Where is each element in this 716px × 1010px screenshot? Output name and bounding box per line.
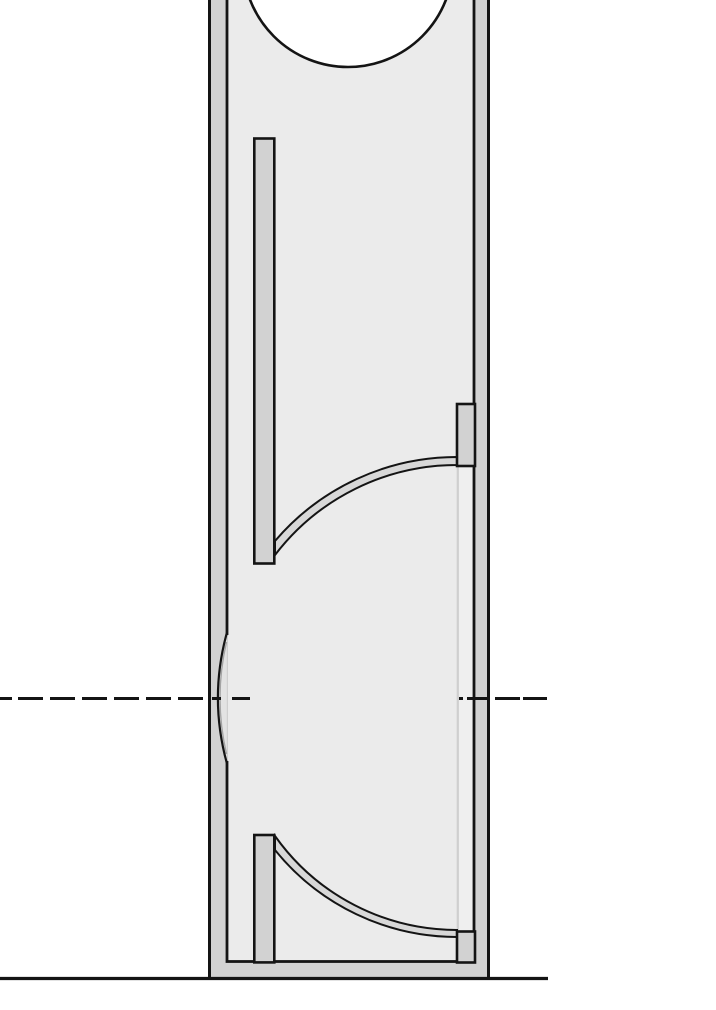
upper-wall-block xyxy=(457,404,475,466)
lower-post-panel xyxy=(254,835,274,962)
lower-wall-block xyxy=(457,932,475,963)
upper-internal-panel xyxy=(254,139,274,564)
drawing-svg xyxy=(0,0,716,1010)
drawing-page xyxy=(0,0,716,1010)
